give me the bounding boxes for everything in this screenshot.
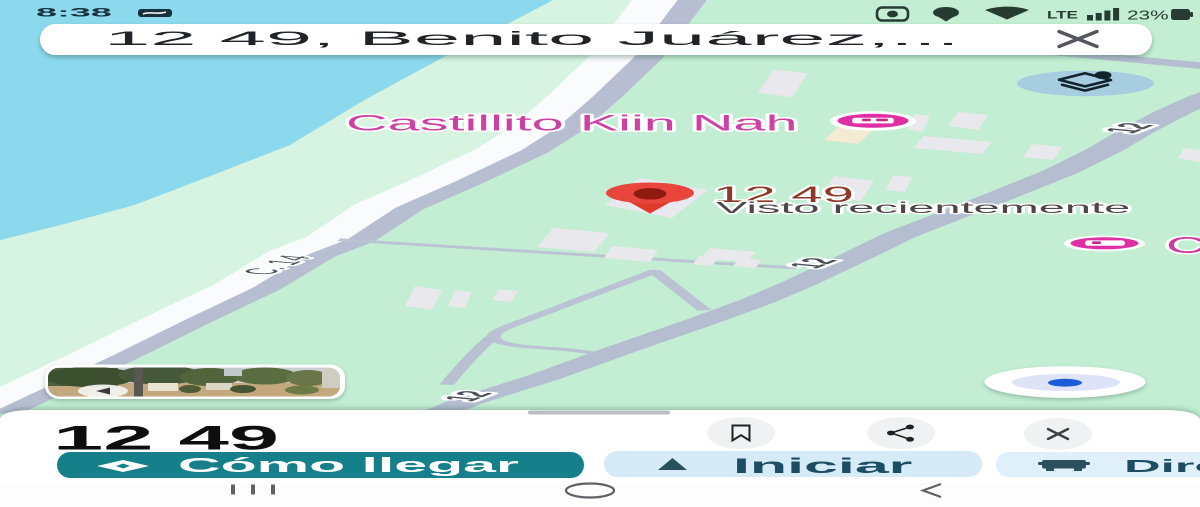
svg-text:12 49, Benito Juárez,...: 12 49, Benito Juárez,... xyxy=(104,28,960,49)
svg-text:8:38: 8:38 xyxy=(36,6,112,19)
svg-text:Castillito Kiin Nah: Castillito Kiin Nah xyxy=(346,111,798,135)
svg-text:Cómo llegar: Cómo llegar xyxy=(178,454,519,476)
svg-text:Visto recientemente: Visto recientemente xyxy=(716,199,1130,216)
svg-text:LTE: LTE xyxy=(1047,9,1078,21)
svg-text:C: C xyxy=(1166,232,1200,258)
svg-text:Direcci: Direcci xyxy=(1124,457,1200,476)
svg-text:Iniciar: Iniciar xyxy=(733,454,913,478)
svg-text:23%: 23% xyxy=(1127,8,1169,23)
svg-text:12 49: 12 49 xyxy=(53,419,279,457)
